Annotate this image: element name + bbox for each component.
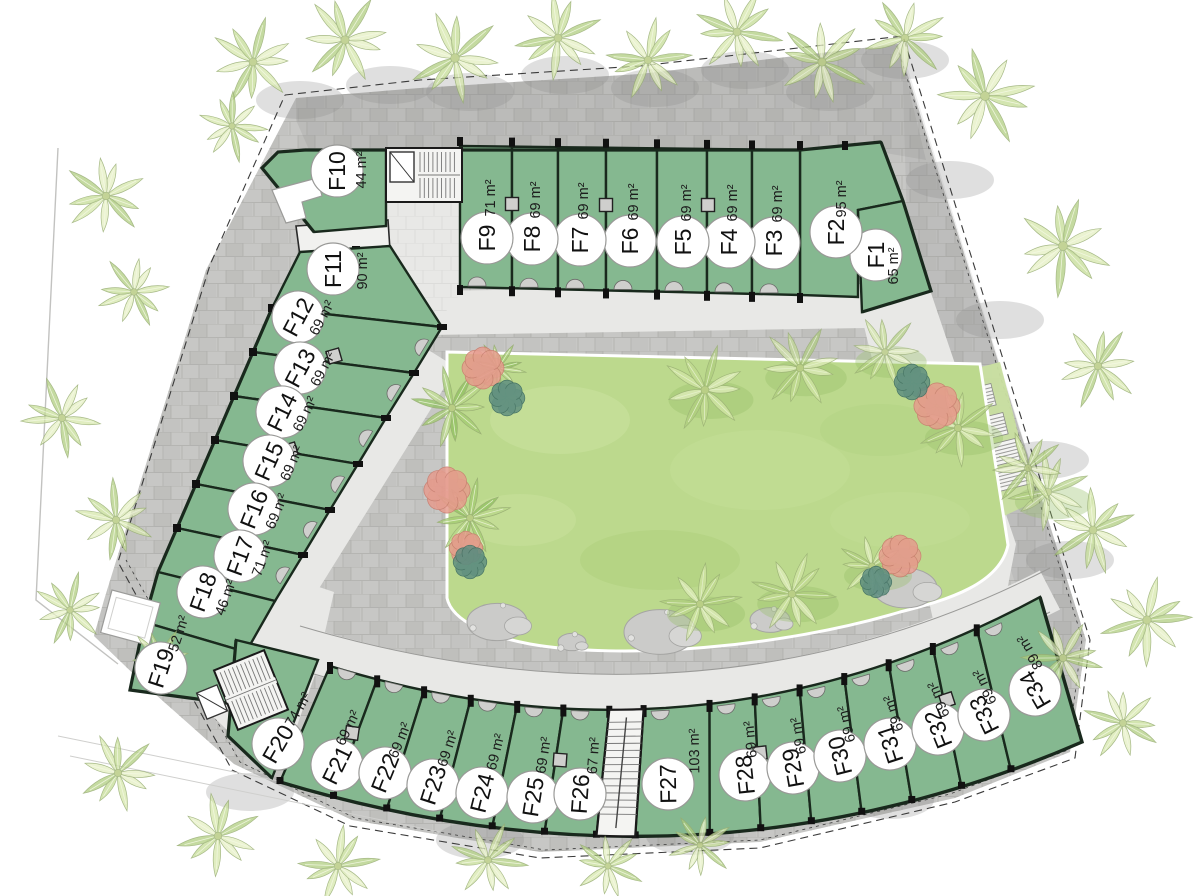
unit-area-label: 69 m² (576, 182, 592, 219)
teal-bush (894, 364, 930, 400)
unit-id-label: F26 (566, 773, 595, 814)
unit-label-F7[interactable]: F7 (554, 214, 606, 266)
column-stub (603, 139, 609, 148)
palm-tree (1100, 576, 1193, 667)
shaft-box (702, 199, 715, 212)
unit-area-label: 69 m² (528, 181, 544, 218)
unit-id-label: F9 (474, 225, 500, 252)
unit-area-label: 95 m² (834, 180, 850, 217)
unit-id-label: F8 (519, 226, 545, 253)
unit-area-label: 103 m² (687, 728, 704, 774)
palm-tree (937, 48, 1035, 144)
unit-area-label: 65 m² (886, 247, 902, 284)
tree-shadow (521, 56, 609, 94)
palm-tree (1061, 330, 1134, 408)
shaft-box (600, 199, 613, 212)
palm-tree (1083, 690, 1157, 758)
tree-shadow (956, 301, 1044, 339)
unit-label-F9[interactable]: F9 (461, 212, 513, 264)
unit-area-label: 44 m² (354, 151, 370, 188)
unit-id-label: F11 (320, 250, 346, 288)
palm-tree (21, 377, 101, 458)
unit-label-F8[interactable]: F8 (506, 213, 558, 265)
unit-id-label: F3 (761, 230, 787, 257)
column-stub (842, 141, 848, 150)
unit-id-label: F6 (617, 228, 643, 255)
unit-label-F6[interactable]: F6 (604, 215, 656, 267)
palm-tree (1022, 198, 1111, 298)
unit-label-F3[interactable]: F3 (748, 217, 800, 269)
column-stub (509, 138, 515, 147)
walkway-north (430, 305, 928, 313)
unit-label-F11[interactable]: F11 (307, 243, 359, 295)
unit-id-label: F10 (324, 151, 350, 191)
palm-tree (98, 258, 170, 326)
column-stub (797, 141, 803, 150)
unit-id-label: F4 (716, 228, 742, 255)
staircase-north (386, 148, 462, 202)
unit-id-label: F27 (655, 764, 682, 804)
teal-bush (489, 380, 525, 416)
palm-tree (68, 158, 145, 233)
unit-id-label: F2 (823, 219, 849, 246)
tree-shadow (906, 161, 994, 199)
flower-bush (424, 467, 470, 513)
column-stub (555, 138, 561, 147)
unit-area-label: 69 m² (725, 184, 741, 221)
unit-id-label: F5 (670, 229, 696, 256)
unit-area-label: 67 m² (585, 737, 604, 775)
shaft-box (506, 198, 519, 211)
teal-bush (453, 545, 487, 579)
column-stub (457, 137, 463, 146)
unit-id-label: F7 (567, 227, 593, 254)
palm-tree (298, 825, 381, 896)
unit-label-F4[interactable]: F4 (703, 216, 755, 268)
teal-bush (860, 566, 892, 598)
unit-label-F5[interactable]: F5 (657, 216, 709, 268)
unit-area-label: 69 m² (770, 185, 786, 222)
unit-area-label: 90 m² (355, 252, 371, 289)
unit-id-label: F28 (730, 754, 760, 796)
unit-area-label: 69 m² (679, 184, 695, 221)
site-plan-page: F165 m²F295 m²F369 m²F469 m²F569 m²F669 … (0, 0, 1200, 896)
flower-bush (462, 347, 504, 389)
tree-shadow (256, 81, 344, 119)
shaft-box (553, 753, 567, 767)
floor-plan-canvas: F165 m²F295 m²F369 m²F469 m²F569 m²F669 … (0, 0, 1200, 896)
palm-tree (82, 734, 155, 811)
column-stub (704, 140, 710, 149)
column-stub (749, 140, 755, 149)
unit-area-label: 69 m² (626, 183, 642, 220)
palm-tree (213, 17, 290, 102)
unit-area-label: 71 m² (483, 179, 499, 216)
column-stub (654, 139, 660, 148)
